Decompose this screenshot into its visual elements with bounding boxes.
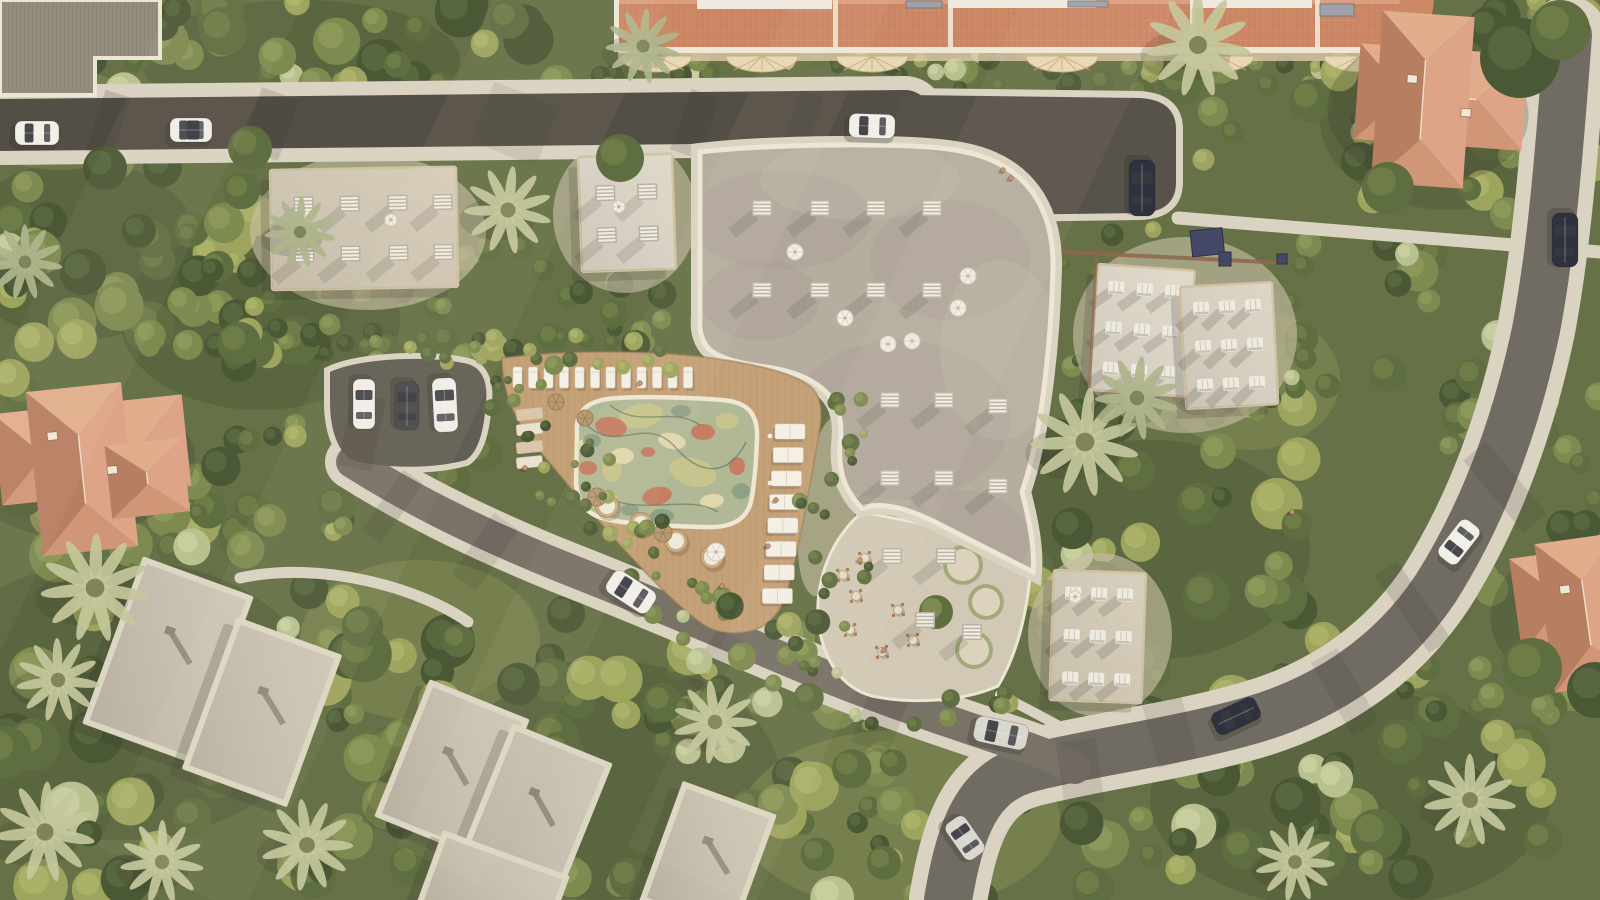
sunlight-overlay [0, 0, 1600, 900]
aerial-site-plan-render [0, 0, 1600, 900]
scene-canvas [0, 0, 1600, 900]
